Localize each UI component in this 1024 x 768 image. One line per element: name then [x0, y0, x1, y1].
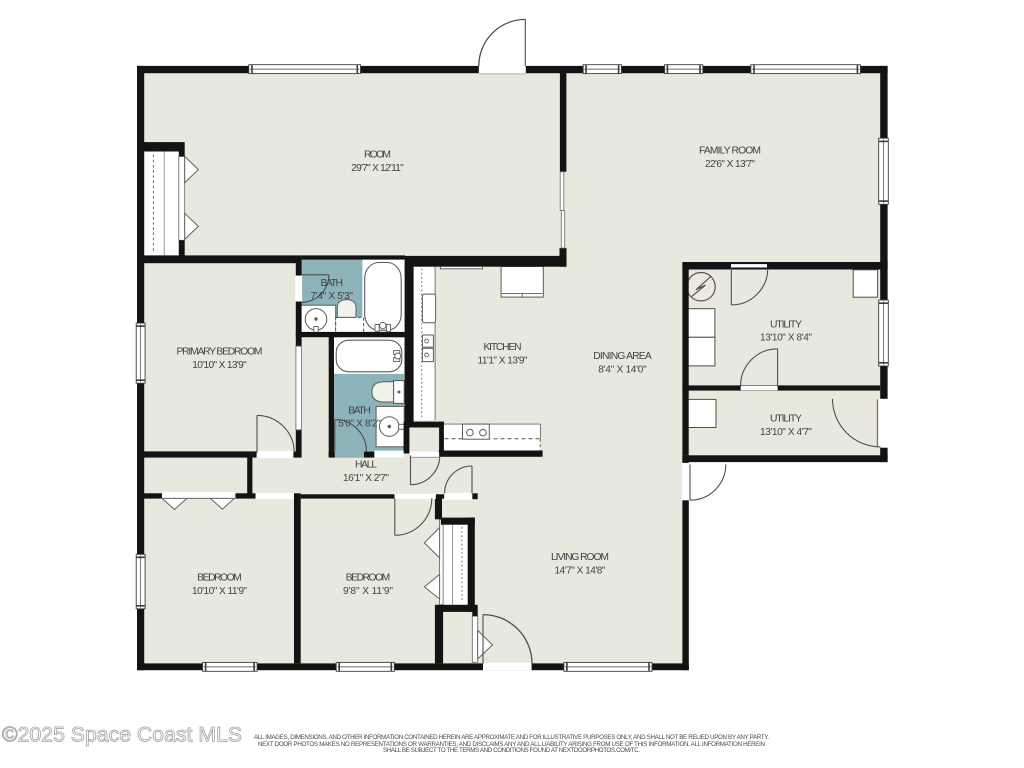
svg-text:13'10" X 8'4": 13'10" X 8'4" [760, 333, 812, 344]
svg-text:KITCHEN: KITCHEN [484, 342, 522, 353]
svg-text:PRIMARY BEDROOM: PRIMARY BEDROOM [177, 347, 263, 358]
svg-text:FAMILY ROOM: FAMILY ROOM [699, 146, 761, 157]
svg-text:BEDROOM: BEDROOM [346, 573, 391, 584]
svg-text:ROOM: ROOM [364, 150, 391, 161]
svg-text:10'10" X 13'9": 10'10" X 13'9" [192, 360, 247, 371]
svg-text:BEDROOM: BEDROOM [197, 573, 242, 584]
svg-text:UTILITY: UTILITY [770, 319, 802, 330]
svg-text:22'6" X 13'7": 22'6" X 13'7" [705, 159, 755, 170]
svg-text:14'7" X 14'8": 14'7" X 14'8" [555, 566, 606, 577]
svg-text:LIVING ROOM: LIVING ROOM [551, 552, 609, 563]
svg-text:BATH: BATH [348, 405, 371, 416]
svg-text:5'0" X 8'2": 5'0" X 8'2" [338, 419, 381, 430]
svg-text:HALL: HALL [355, 460, 377, 471]
svg-text:UTILITY: UTILITY [770, 414, 802, 425]
svg-text:29'7" X 12'11": 29'7" X 12'11" [351, 163, 404, 174]
svg-text:11'1" X 13'9": 11'1" X 13'9" [478, 355, 528, 366]
svg-text:BATH: BATH [320, 278, 343, 289]
svg-text:9'8" X 11'9": 9'8" X 11'9" [343, 586, 393, 597]
svg-text:13'10" X 4'7": 13'10" X 4'7" [760, 427, 812, 438]
svg-text:16'1" X 2'7": 16'1" X 2'7" [343, 473, 389, 484]
svg-text:©2025 Space Coast MLS: ©2025 Space Coast MLS [2, 723, 242, 747]
svg-text:7'4" X 5'3": 7'4" X 5'3" [310, 291, 353, 302]
svg-text:DINING AREA: DINING AREA [593, 351, 652, 362]
svg-text:SHALL BE SUBJECT TO THE TERMS: SHALL BE SUBJECT TO THE TERMS AND CONDIT… [383, 747, 640, 754]
svg-text:10'10" X 11'9": 10'10" X 11'9" [192, 586, 247, 597]
svg-text:8'4" X 14'0": 8'4" X 14'0" [598, 364, 647, 375]
